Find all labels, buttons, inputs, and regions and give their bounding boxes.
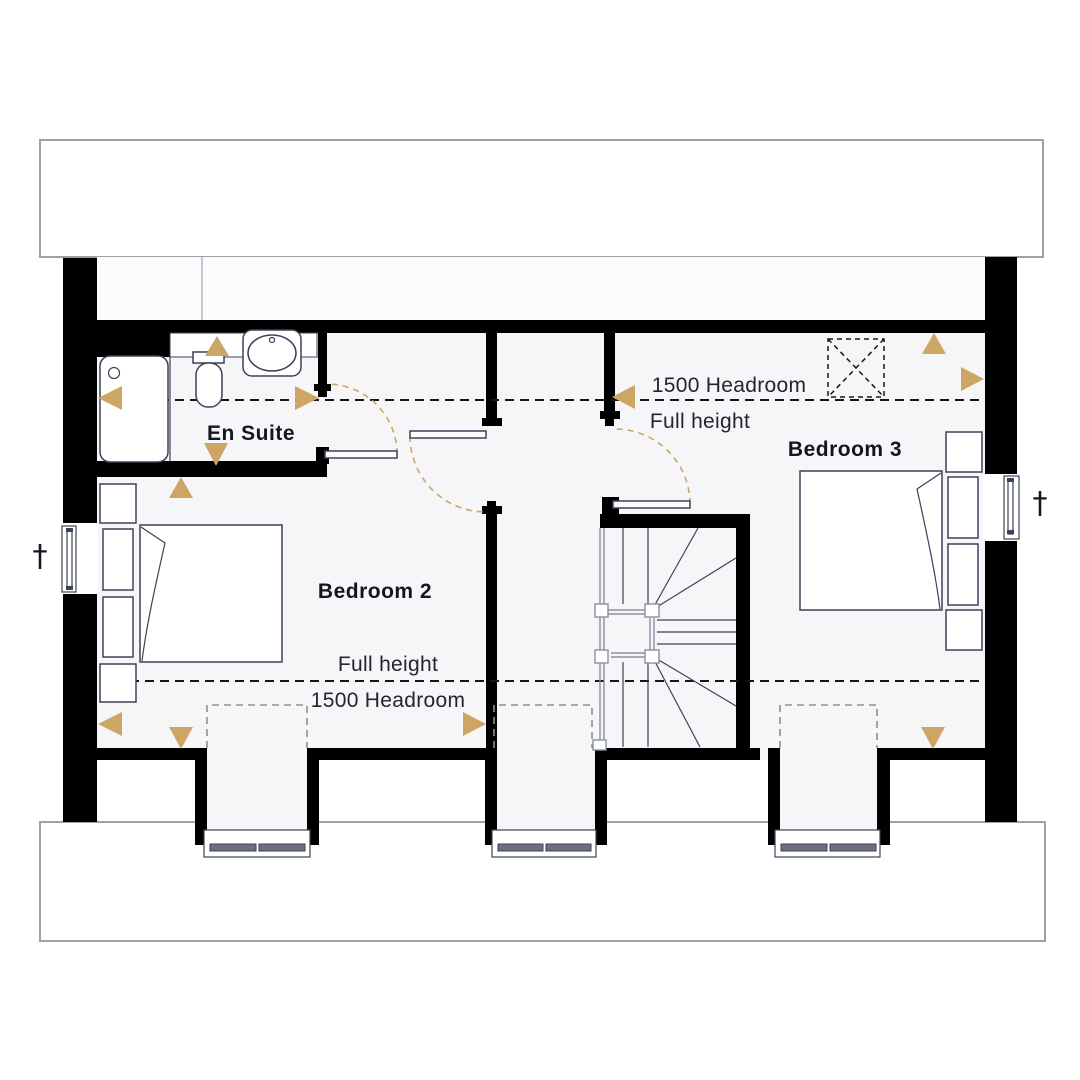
- room-label-bedroom-3: Bedroom 3: [788, 438, 902, 461]
- pillow: [103, 597, 133, 657]
- window-left: [59, 523, 98, 594]
- bedside-table: [946, 610, 982, 650]
- roof-outline-top: [40, 140, 1043, 257]
- wall-ensuite-stub: [318, 332, 327, 388]
- room-label-en-suite: En Suite: [207, 422, 295, 445]
- door-bedroom-2: [410, 431, 486, 438]
- basin: [248, 335, 296, 371]
- floor-plan: En Suite Bedroom 2 Bedroom 3 1500 Headro…: [0, 0, 1080, 1080]
- annotation-full-height-bottom: Full height: [338, 653, 438, 676]
- bedside-table: [100, 484, 136, 523]
- door-en-suite: [325, 451, 397, 458]
- wall-bedroom2-lower: [486, 510, 497, 750]
- toilet-bowl: [196, 363, 222, 407]
- window-right: [983, 474, 1023, 541]
- newel-post: [593, 740, 606, 750]
- bed-2: [140, 525, 282, 662]
- dormer-window-middle: [492, 830, 596, 857]
- dagger-symbol-left: †: [33, 539, 48, 574]
- bathtub: [100, 356, 168, 462]
- pillow: [948, 544, 978, 605]
- wall-ensuite-bottom: [97, 461, 327, 477]
- wall-top: [97, 320, 985, 333]
- wall-ensuite-block: [97, 333, 170, 357]
- annotation-full-height-top: Full height: [650, 410, 750, 433]
- wall-bedroom2-stub: [486, 333, 497, 425]
- dormer-window-left: [204, 830, 310, 857]
- newel-post: [595, 650, 608, 663]
- bedside-table: [100, 664, 136, 702]
- bedside-table: [946, 432, 982, 472]
- annotation-headroom-bottom: 1500 Headroom: [311, 689, 466, 712]
- wall-bedroom3-stub: [604, 333, 615, 418]
- newel-post: [595, 604, 608, 617]
- dormer-window-right: [775, 830, 880, 857]
- wall-stairs-right: [736, 514, 750, 760]
- door-bedroom-3: [613, 501, 690, 508]
- wall-stairs-top: [600, 514, 750, 528]
- dagger-symbol-right: †: [1033, 486, 1048, 521]
- newel-post: [645, 650, 659, 663]
- newel-post: [645, 604, 659, 617]
- pillow: [103, 529, 133, 590]
- room-label-bedroom-2: Bedroom 2: [318, 580, 432, 603]
- bed-3: [800, 471, 942, 610]
- pillow: [948, 477, 978, 538]
- annotation-headroom-top: 1500 Headroom: [652, 374, 807, 397]
- eaves-strip: [97, 257, 985, 321]
